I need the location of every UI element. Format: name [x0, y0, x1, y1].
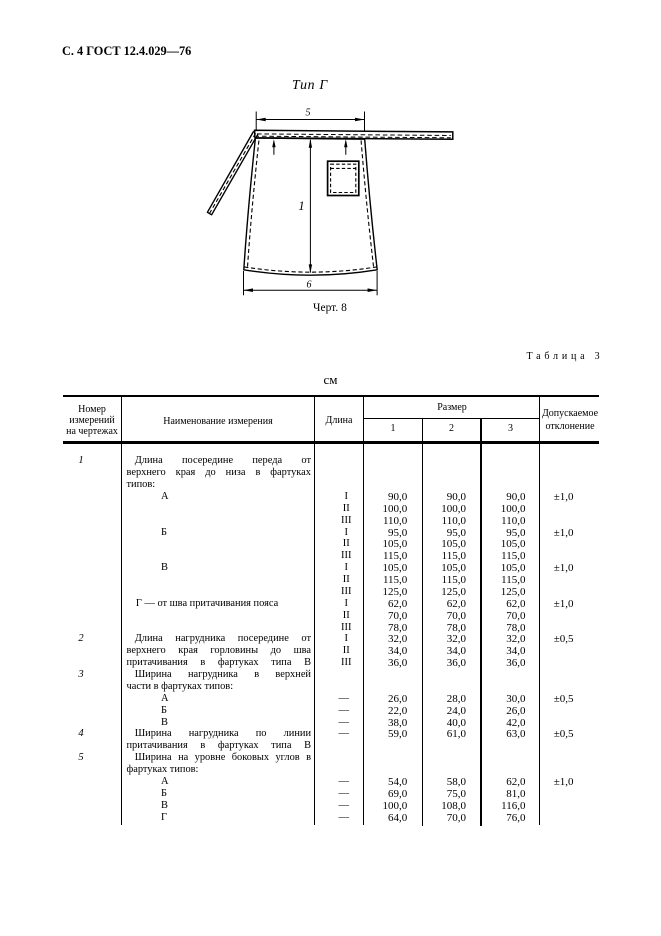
svg-text:5: 5: [306, 108, 311, 119]
svg-text:Тип Г: Тип Г: [292, 77, 328, 92]
svg-text:1: 1: [298, 199, 304, 213]
svg-text:6: 6: [307, 280, 312, 291]
